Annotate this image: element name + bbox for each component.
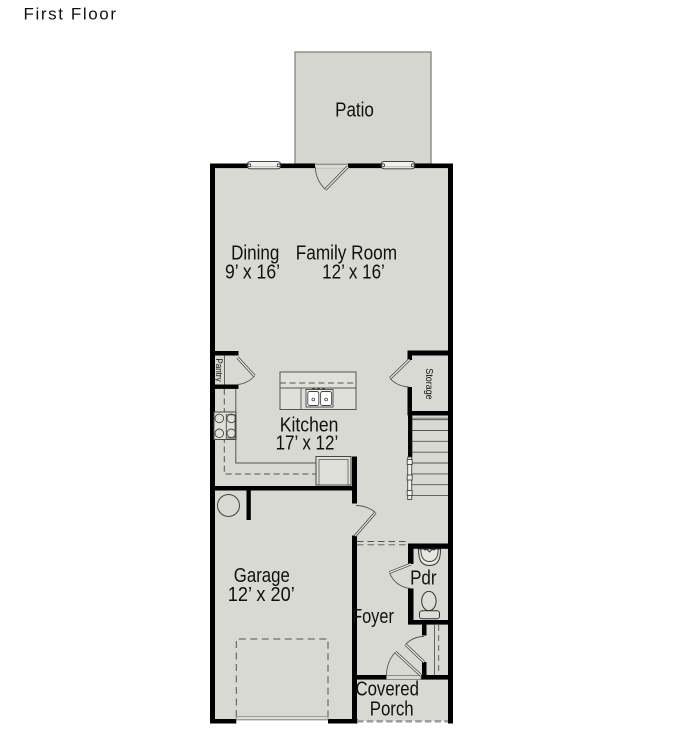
svg-text:Pdr: Pdr [410,566,436,589]
svg-text:12’ x 16’: 12’ x 16’ [322,260,385,283]
svg-text:Storage: Storage [423,368,435,399]
svg-text:Pantry: Pantry [214,358,225,382]
svg-text:17’ x 12’: 17’ x 12’ [276,431,339,454]
svg-text:12’ x 20’: 12’ x 20’ [228,584,295,606]
svg-text:Porch: Porch [370,697,414,720]
svg-text:9’ x 16’: 9’ x 16’ [225,260,280,282]
svg-text:Garage: Garage [234,564,290,587]
svg-text:Foyer: Foyer [352,605,394,628]
svg-text:Patio: Patio [335,98,374,121]
svg-text:First Floor: First Floor [24,5,118,24]
